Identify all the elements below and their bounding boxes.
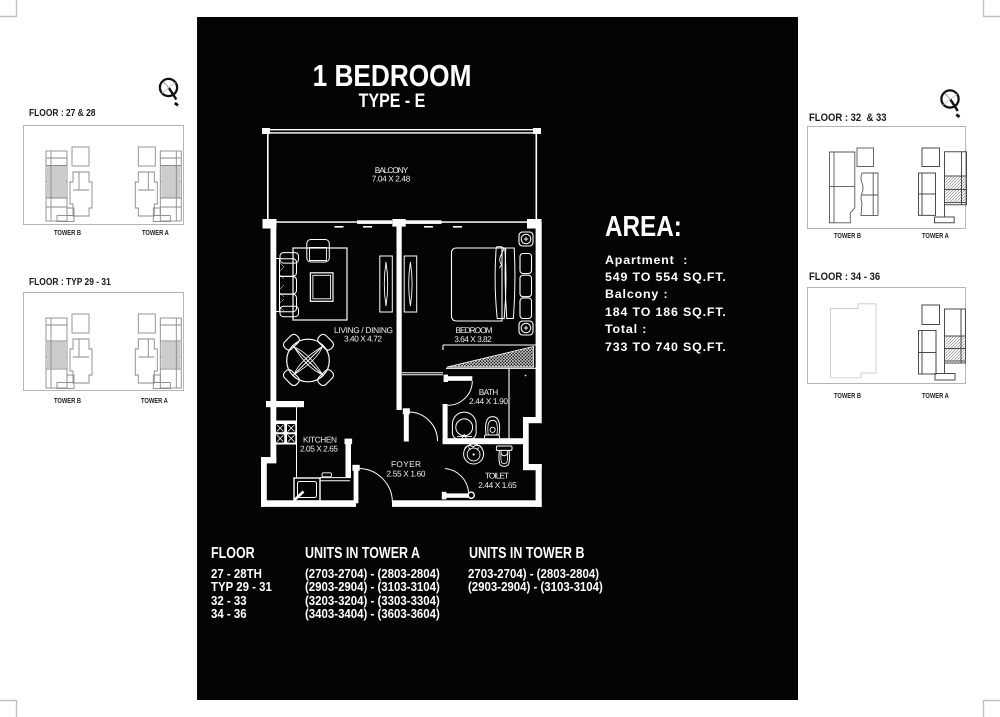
svg-text:7.04 X 2.48: 7.04 X 2.48	[372, 174, 411, 184]
svg-text:3.40 X 4.72: 3.40 X 4.72	[344, 334, 382, 344]
svg-text:2.44 X 1.65: 2.44 X 1.65	[478, 480, 517, 490]
svg-text:2.55 X 1.60: 2.55 X 1.60	[387, 469, 426, 479]
svg-text:FOYER: FOYER	[391, 459, 421, 469]
svg-text:3.64 X 3.82: 3.64 X 3.82	[454, 334, 492, 344]
svg-text:2.44 X 1.90: 2.44 X 1.90	[469, 396, 508, 406]
svg-text:2.05 X 2.65: 2.05 X 2.65	[300, 444, 338, 454]
